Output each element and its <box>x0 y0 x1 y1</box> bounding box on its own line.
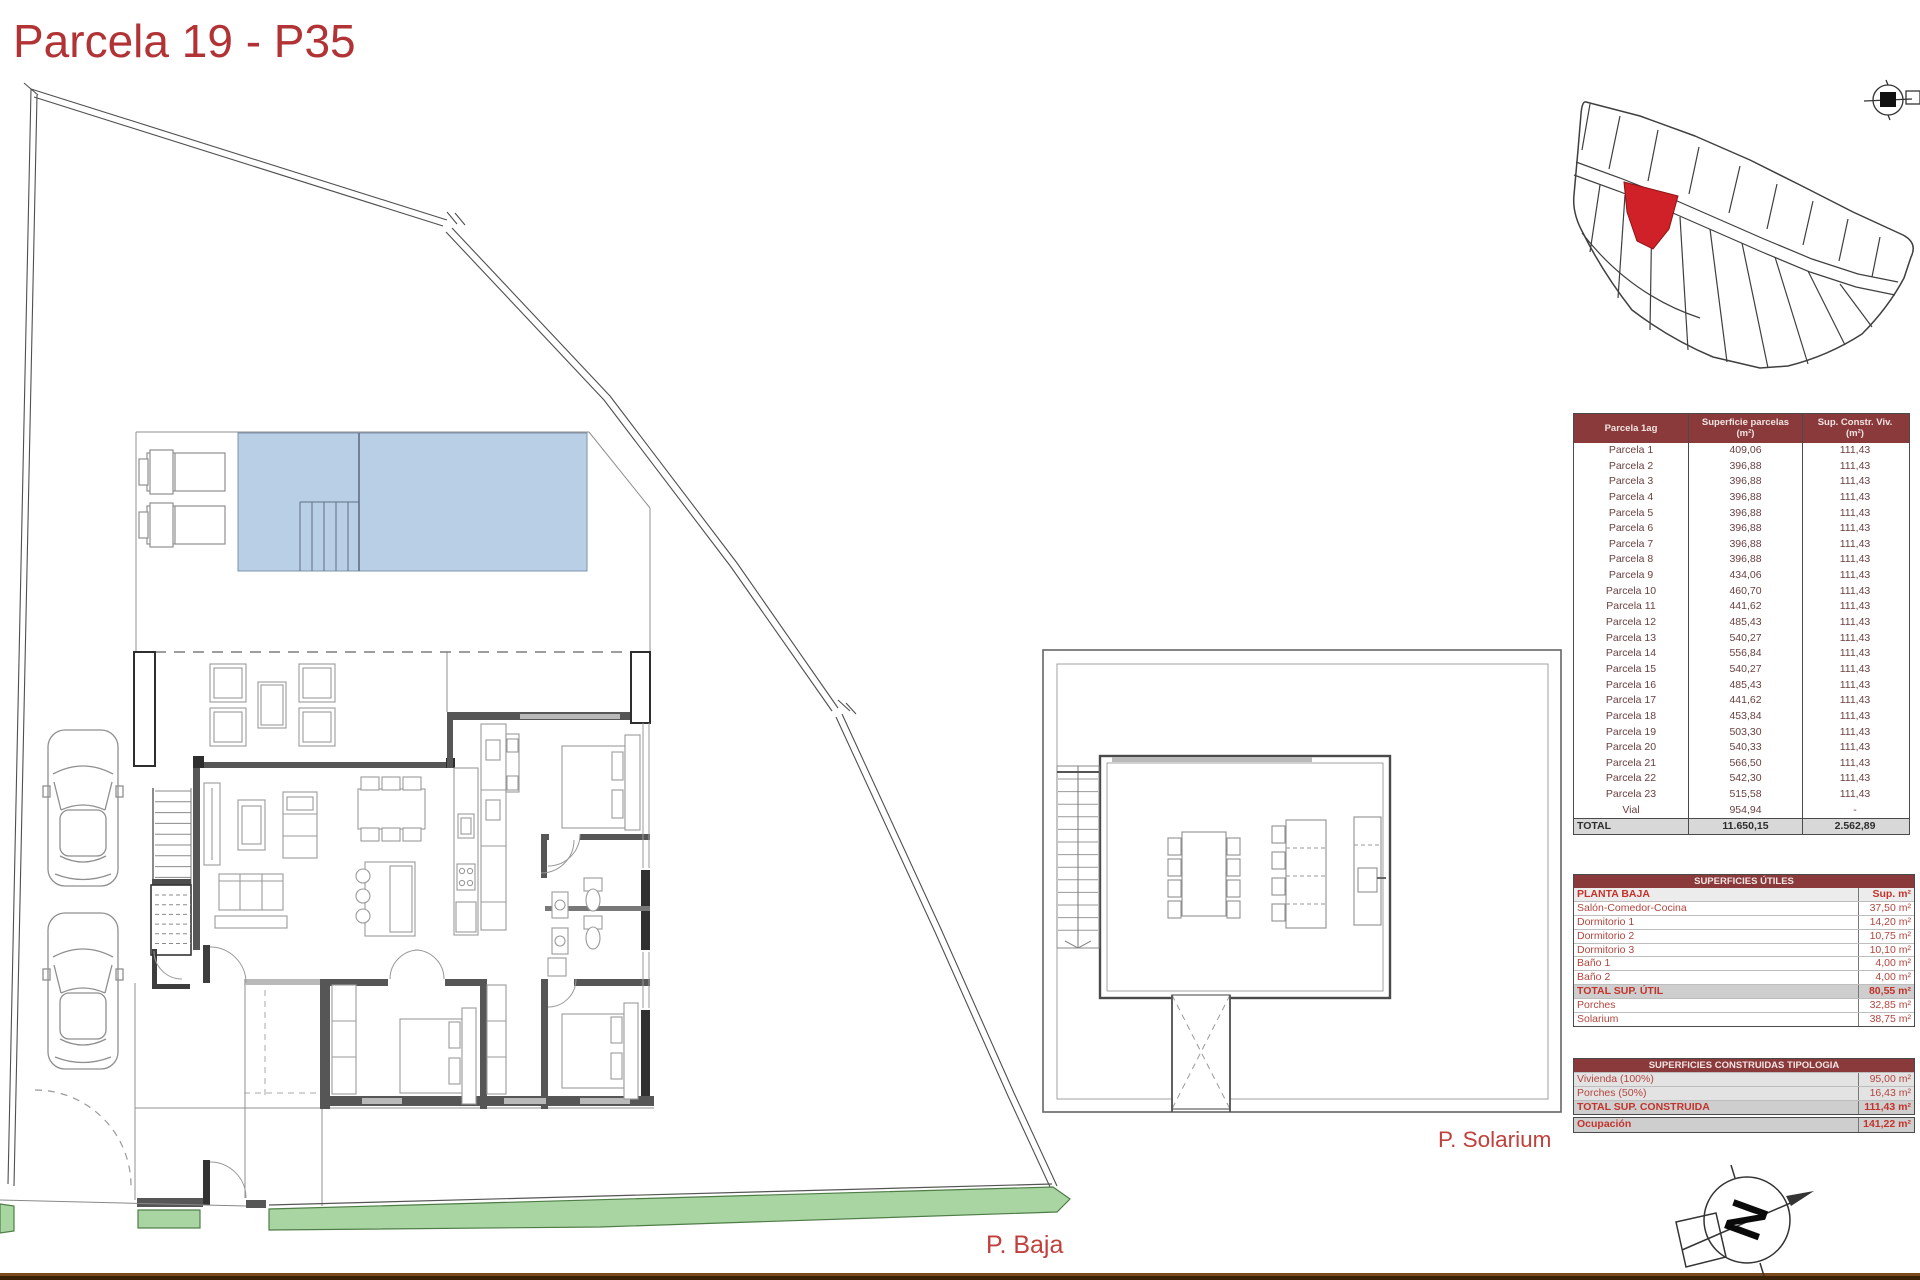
svg-text:N: N <box>1713 1192 1780 1247</box>
